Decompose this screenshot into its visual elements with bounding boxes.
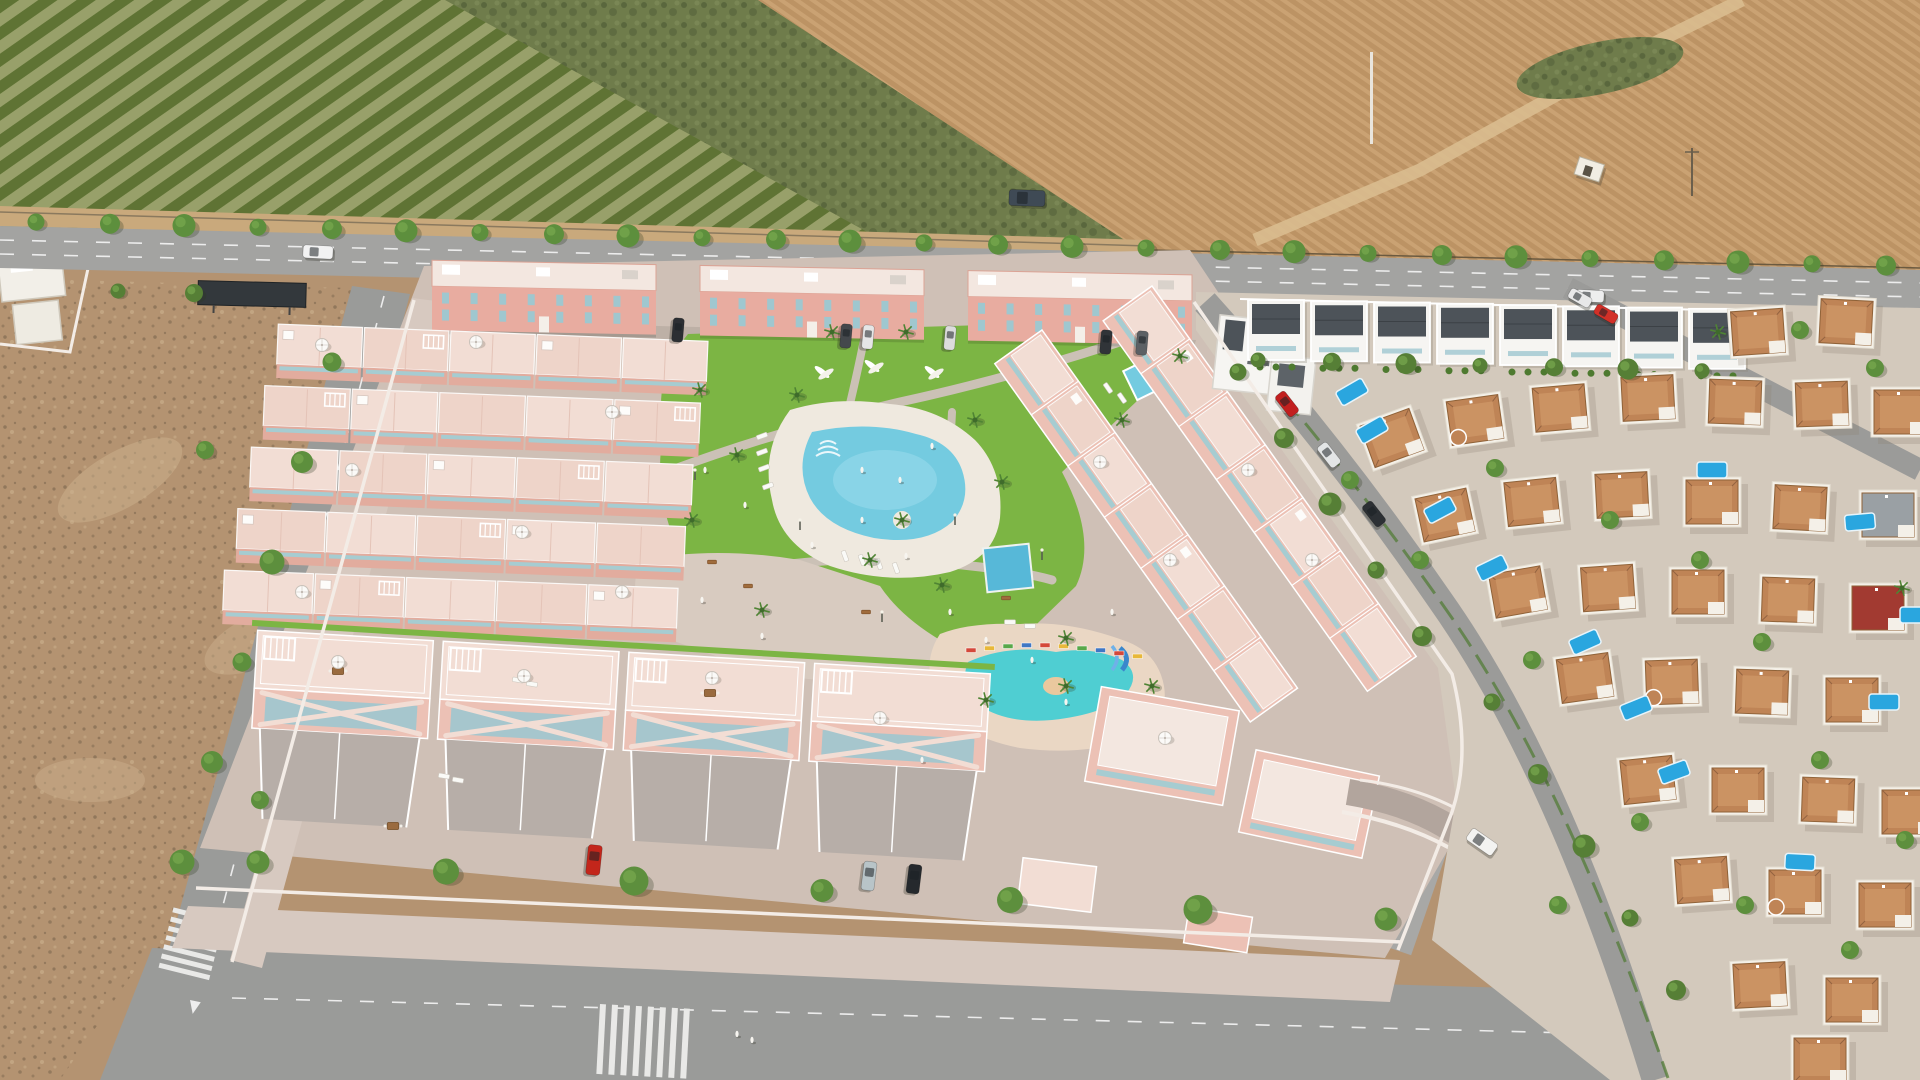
car-glass — [1017, 192, 1028, 204]
villa — [1798, 774, 1865, 833]
villa — [1618, 371, 1686, 431]
terrace-notch — [1571, 416, 1588, 429]
shape-part — [397, 222, 407, 232]
chimney — [1875, 588, 1878, 591]
shape-part — [769, 232, 778, 241]
shape-part — [337, 661, 339, 663]
shape-part — [700, 597, 703, 603]
shape-part — [930, 443, 933, 449]
townhouse-unit — [427, 454, 516, 511]
shape-part — [249, 853, 259, 863]
hedge — [1352, 365, 1359, 372]
window-strip — [1508, 351, 1548, 356]
window — [528, 294, 535, 305]
villa — [1553, 648, 1625, 713]
shape-part — [198, 443, 206, 451]
window-strip — [1445, 350, 1485, 355]
window — [978, 303, 985, 314]
car-parked-4 — [941, 325, 957, 352]
shape-part — [1806, 257, 1814, 265]
window — [556, 312, 563, 323]
shape-part — [340, 394, 341, 407]
bench — [862, 610, 871, 614]
window — [739, 298, 746, 309]
hedge — [1509, 369, 1516, 376]
shape-part — [623, 870, 636, 883]
shape-part — [1716, 330, 1721, 335]
townhouse-unit — [449, 331, 535, 388]
terrace-notch — [1619, 596, 1636, 609]
townhouse-unit — [350, 389, 438, 446]
townhouse-unit — [535, 335, 621, 392]
townhouse-unit — [438, 393, 526, 450]
roof-box — [710, 270, 728, 280]
hedge — [1273, 364, 1280, 371]
chimney — [1844, 302, 1847, 305]
shape-part — [388, 823, 399, 830]
townhouse-unit — [263, 386, 351, 443]
villa — [1769, 482, 1837, 542]
terrace-notch — [1486, 426, 1504, 440]
shape-part — [904, 330, 909, 335]
terrace-notch — [1809, 519, 1826, 532]
terrace-notch — [1832, 413, 1848, 426]
shape-part — [1729, 253, 1739, 263]
shape-part — [1311, 559, 1313, 561]
car-glass — [864, 867, 874, 877]
hedge — [1462, 367, 1469, 374]
shape-part — [879, 717, 881, 719]
car-glass — [909, 870, 919, 880]
hedge — [1289, 364, 1296, 371]
stair-box — [320, 580, 331, 589]
chimney — [1709, 482, 1712, 485]
chimney — [1735, 770, 1738, 773]
townhouse-matrix — [222, 322, 708, 643]
window — [767, 299, 774, 310]
window-strip — [1571, 352, 1611, 357]
shape-part — [900, 518, 905, 523]
chimney — [1818, 384, 1821, 387]
roof-box — [622, 270, 638, 279]
shape-part — [1793, 323, 1801, 331]
villa — [1791, 1035, 1856, 1080]
private-pool — [1900, 607, 1920, 623]
shape-part — [953, 513, 956, 516]
window — [710, 298, 717, 309]
car-glass — [946, 331, 954, 339]
villa — [1671, 853, 1740, 914]
shape-part — [1285, 243, 1295, 253]
window — [978, 320, 985, 331]
shape-part — [521, 531, 523, 533]
window — [1092, 322, 1099, 333]
fence-segment — [1133, 654, 1143, 659]
chimney — [1760, 672, 1763, 675]
shape-part — [594, 466, 595, 479]
private-pool — [1869, 694, 1899, 710]
shape-part — [1738, 898, 1746, 906]
shape-part — [436, 862, 448, 874]
car-parked-1 — [669, 317, 685, 344]
stair-box — [283, 330, 294, 339]
shape-part — [235, 655, 244, 664]
shape-part — [1252, 354, 1259, 361]
shape-part — [717, 692, 720, 695]
shape-part — [1669, 983, 1678, 992]
window — [499, 294, 506, 305]
villa — [1730, 958, 1798, 1018]
fence-segment — [1022, 643, 1032, 648]
car-glass — [309, 247, 318, 256]
shape-part — [1343, 473, 1351, 481]
entrance-door — [539, 316, 549, 332]
shape-part — [690, 518, 695, 523]
townhouse-unit — [222, 570, 313, 628]
shape-part — [611, 411, 613, 413]
shape-part — [1843, 943, 1851, 951]
shape-part — [760, 608, 765, 613]
window — [881, 301, 888, 312]
shape-part — [325, 221, 334, 230]
shape-part — [841, 233, 851, 243]
car-parked-5 — [1097, 329, 1113, 356]
shape-part — [1551, 898, 1559, 906]
shape-part — [1232, 366, 1240, 374]
villa — [1709, 765, 1774, 822]
shape-part — [904, 553, 907, 559]
shape-part — [433, 335, 434, 348]
hedge — [1588, 370, 1595, 377]
sand-patch — [35, 758, 145, 802]
chimney — [1644, 378, 1647, 381]
stair-box — [433, 460, 444, 469]
shape-part — [1435, 248, 1444, 257]
window — [767, 316, 774, 327]
shape-part — [589, 466, 590, 479]
shape-part — [1030, 657, 1033, 663]
window — [1064, 304, 1071, 315]
shape-part — [1575, 837, 1585, 847]
shape-part — [918, 237, 926, 245]
car-parked-3 — [859, 324, 875, 351]
shape-part — [485, 524, 486, 537]
chimney — [1849, 680, 1852, 683]
townhouse-unit — [595, 523, 685, 580]
shape-part — [698, 388, 703, 393]
roof-box — [890, 275, 906, 284]
shape-part — [1064, 699, 1067, 705]
townhouse-unit — [338, 451, 427, 508]
terrace-notch — [1862, 1010, 1878, 1022]
townhouse-unit — [496, 581, 587, 639]
chimney — [1438, 495, 1442, 499]
shape-part — [1755, 635, 1763, 643]
window — [1092, 305, 1099, 316]
villa — [1871, 387, 1920, 444]
villa — [1683, 477, 1748, 534]
shape-part — [1398, 356, 1407, 365]
shape-part — [1362, 247, 1370, 255]
window — [528, 311, 535, 322]
shape-part — [813, 882, 823, 892]
shape-part — [685, 408, 686, 421]
window — [824, 300, 831, 311]
shape-part — [830, 330, 835, 335]
aerial-photo — [0, 0, 1920, 1080]
window — [881, 318, 888, 329]
villa — [1732, 666, 1799, 725]
shape-part — [490, 524, 491, 537]
lagoon-shallow — [833, 450, 937, 510]
townhouse-unit — [525, 396, 613, 453]
shape-part — [696, 231, 704, 239]
shape-part — [1624, 912, 1632, 920]
window — [642, 296, 649, 307]
villa — [1815, 296, 1883, 356]
shape-part — [400, 825, 403, 828]
window — [1178, 307, 1185, 318]
terrace-notch — [1805, 902, 1821, 914]
shape-part — [1547, 360, 1555, 368]
terrace-notch — [1682, 691, 1698, 704]
terrace-notch — [1713, 888, 1730, 901]
townhouse-unit — [515, 458, 604, 515]
fence-segment — [1114, 651, 1124, 656]
terrace-notch — [1898, 525, 1914, 537]
car-glass — [864, 330, 872, 338]
shape-part — [1584, 252, 1592, 260]
chimney — [1695, 572, 1698, 575]
window — [853, 317, 860, 328]
scene-canvas — [0, 0, 1920, 1080]
shape-part — [735, 453, 740, 458]
shape-part — [1000, 890, 1012, 902]
chimney — [1882, 885, 1885, 888]
villa — [1577, 561, 1646, 622]
shape-part — [345, 670, 348, 673]
shape-part — [984, 698, 989, 703]
shape-part — [750, 1037, 753, 1043]
lap-pool — [983, 544, 1033, 593]
terrace-notch — [1895, 915, 1911, 927]
chimney — [1668, 662, 1671, 665]
chimney — [1698, 860, 1701, 863]
villa — [1617, 751, 1688, 814]
villa — [1705, 376, 1772, 435]
terrace-notch — [1769, 340, 1786, 353]
shape-part — [1413, 553, 1421, 561]
shape-part — [798, 518, 801, 521]
roof-box — [1158, 280, 1174, 289]
terrace-notch — [1543, 509, 1560, 523]
car-glass — [589, 851, 600, 861]
window — [1007, 303, 1014, 314]
shape-part — [204, 754, 214, 764]
sun-lounger — [1025, 624, 1036, 629]
apartment-block-2 — [700, 265, 924, 342]
shape-part — [1325, 355, 1333, 363]
shape-part — [1620, 361, 1629, 370]
shape-part — [1169, 559, 1171, 561]
shape-part — [948, 609, 951, 615]
townhouse-unit — [613, 400, 701, 457]
shape-part — [329, 670, 332, 673]
shape-part — [898, 477, 901, 483]
window-strip — [1382, 349, 1422, 354]
shape-part — [940, 583, 945, 588]
hedge — [1572, 370, 1579, 377]
window — [739, 315, 746, 326]
shape-part — [1474, 360, 1481, 367]
hedge — [1604, 370, 1611, 377]
window — [442, 309, 449, 320]
shape-part — [690, 408, 691, 421]
terrace-notch — [1659, 787, 1676, 801]
shape-part — [1879, 258, 1888, 267]
shape-part — [1488, 461, 1496, 469]
chimney — [1756, 965, 1759, 968]
stair-box — [357, 395, 368, 404]
villa — [1766, 867, 1831, 924]
shape-part — [1525, 653, 1533, 661]
shape-part — [1213, 242, 1222, 251]
window — [796, 299, 803, 310]
shape-part — [1868, 361, 1876, 369]
villa — [1443, 390, 1515, 455]
window — [1007, 320, 1014, 331]
shape-part — [253, 793, 261, 801]
shape-part — [705, 690, 716, 697]
shape-part — [795, 393, 800, 398]
roof-box — [442, 264, 460, 274]
shape-part — [701, 692, 704, 695]
shape-part — [187, 286, 195, 294]
car-parked-2 — [837, 323, 853, 350]
shape-part — [474, 226, 482, 234]
terrace-notch — [1910, 422, 1920, 434]
shape-part — [294, 454, 304, 464]
shape-part — [621, 591, 623, 593]
shape-part — [1064, 636, 1069, 641]
window — [642, 313, 649, 324]
hedge — [1446, 367, 1453, 374]
terrace-notch — [1837, 810, 1853, 823]
apartment-block-1 — [432, 260, 656, 337]
shape-part — [880, 610, 883, 613]
window-strip — [1256, 346, 1296, 351]
shape-part — [693, 468, 696, 471]
shape-part — [868, 558, 873, 563]
car-parked-6 — [1133, 330, 1149, 357]
terrace-notch — [1596, 684, 1614, 698]
fence-segment — [1077, 646, 1087, 651]
shape-part — [1813, 753, 1821, 761]
shape-part — [351, 469, 353, 471]
shape-part — [735, 1031, 738, 1037]
shape-part — [495, 524, 496, 537]
shape-part — [1064, 684, 1069, 689]
shape-part — [112, 285, 119, 292]
shape-part — [384, 825, 387, 828]
roof-upper — [1888, 796, 1920, 828]
fence-segment — [1096, 648, 1106, 653]
villa — [1501, 473, 1572, 536]
shape-part — [984, 637, 987, 643]
terrace-notch — [1748, 800, 1764, 812]
layer-fields — [0, 0, 1920, 272]
shape-part — [263, 553, 274, 564]
villa — [1792, 378, 1859, 437]
window — [556, 295, 563, 306]
fence-segment — [1003, 644, 1013, 649]
chimney — [1754, 312, 1757, 315]
townhouse-unit — [416, 516, 506, 573]
shape-part — [973, 418, 978, 423]
shape-part — [252, 221, 260, 229]
sun-lounger — [1005, 620, 1016, 625]
window — [613, 296, 620, 307]
shape-part — [384, 582, 385, 595]
villa — [1727, 305, 1796, 366]
townhouse-unit — [604, 461, 693, 518]
shape-part — [1040, 548, 1043, 551]
chimney — [1849, 980, 1852, 983]
shape-part — [711, 677, 713, 679]
car-glass — [842, 329, 850, 337]
fence-segment — [985, 646, 995, 651]
shape-part — [523, 675, 525, 677]
shape-part — [1507, 248, 1517, 258]
shape-part — [1120, 418, 1125, 423]
shape-part — [1370, 564, 1378, 572]
white-house — [12, 300, 62, 345]
chimney — [1643, 760, 1646, 763]
private-pool — [1697, 462, 1727, 478]
terrace-notch — [1708, 602, 1724, 614]
window — [471, 293, 478, 304]
window — [442, 292, 449, 303]
shape-part — [475, 341, 477, 343]
terrace-notch — [1862, 710, 1878, 722]
shape-part — [743, 502, 746, 508]
window — [613, 313, 620, 324]
terrace-notch — [1744, 412, 1760, 425]
shape-part — [860, 517, 863, 523]
shape-part — [547, 227, 556, 236]
chimney — [1733, 382, 1736, 385]
townhouse-unit — [621, 338, 707, 395]
shape-part — [1657, 253, 1666, 262]
villa — [1823, 975, 1888, 1032]
stair-box — [542, 341, 553, 350]
shape-part — [330, 393, 331, 406]
shape-part — [584, 466, 585, 479]
villa — [1758, 574, 1825, 633]
villa — [1529, 380, 1599, 442]
shape-part — [1415, 629, 1424, 638]
window — [585, 312, 592, 323]
fence-segment — [966, 648, 976, 653]
window — [853, 300, 860, 311]
shape-part — [301, 591, 303, 593]
van-field — [1009, 189, 1048, 209]
shape-part — [860, 467, 863, 473]
car-glass — [1138, 336, 1146, 344]
private-pool — [1785, 853, 1816, 871]
shape-part — [1377, 910, 1387, 920]
shape-part — [321, 344, 323, 346]
